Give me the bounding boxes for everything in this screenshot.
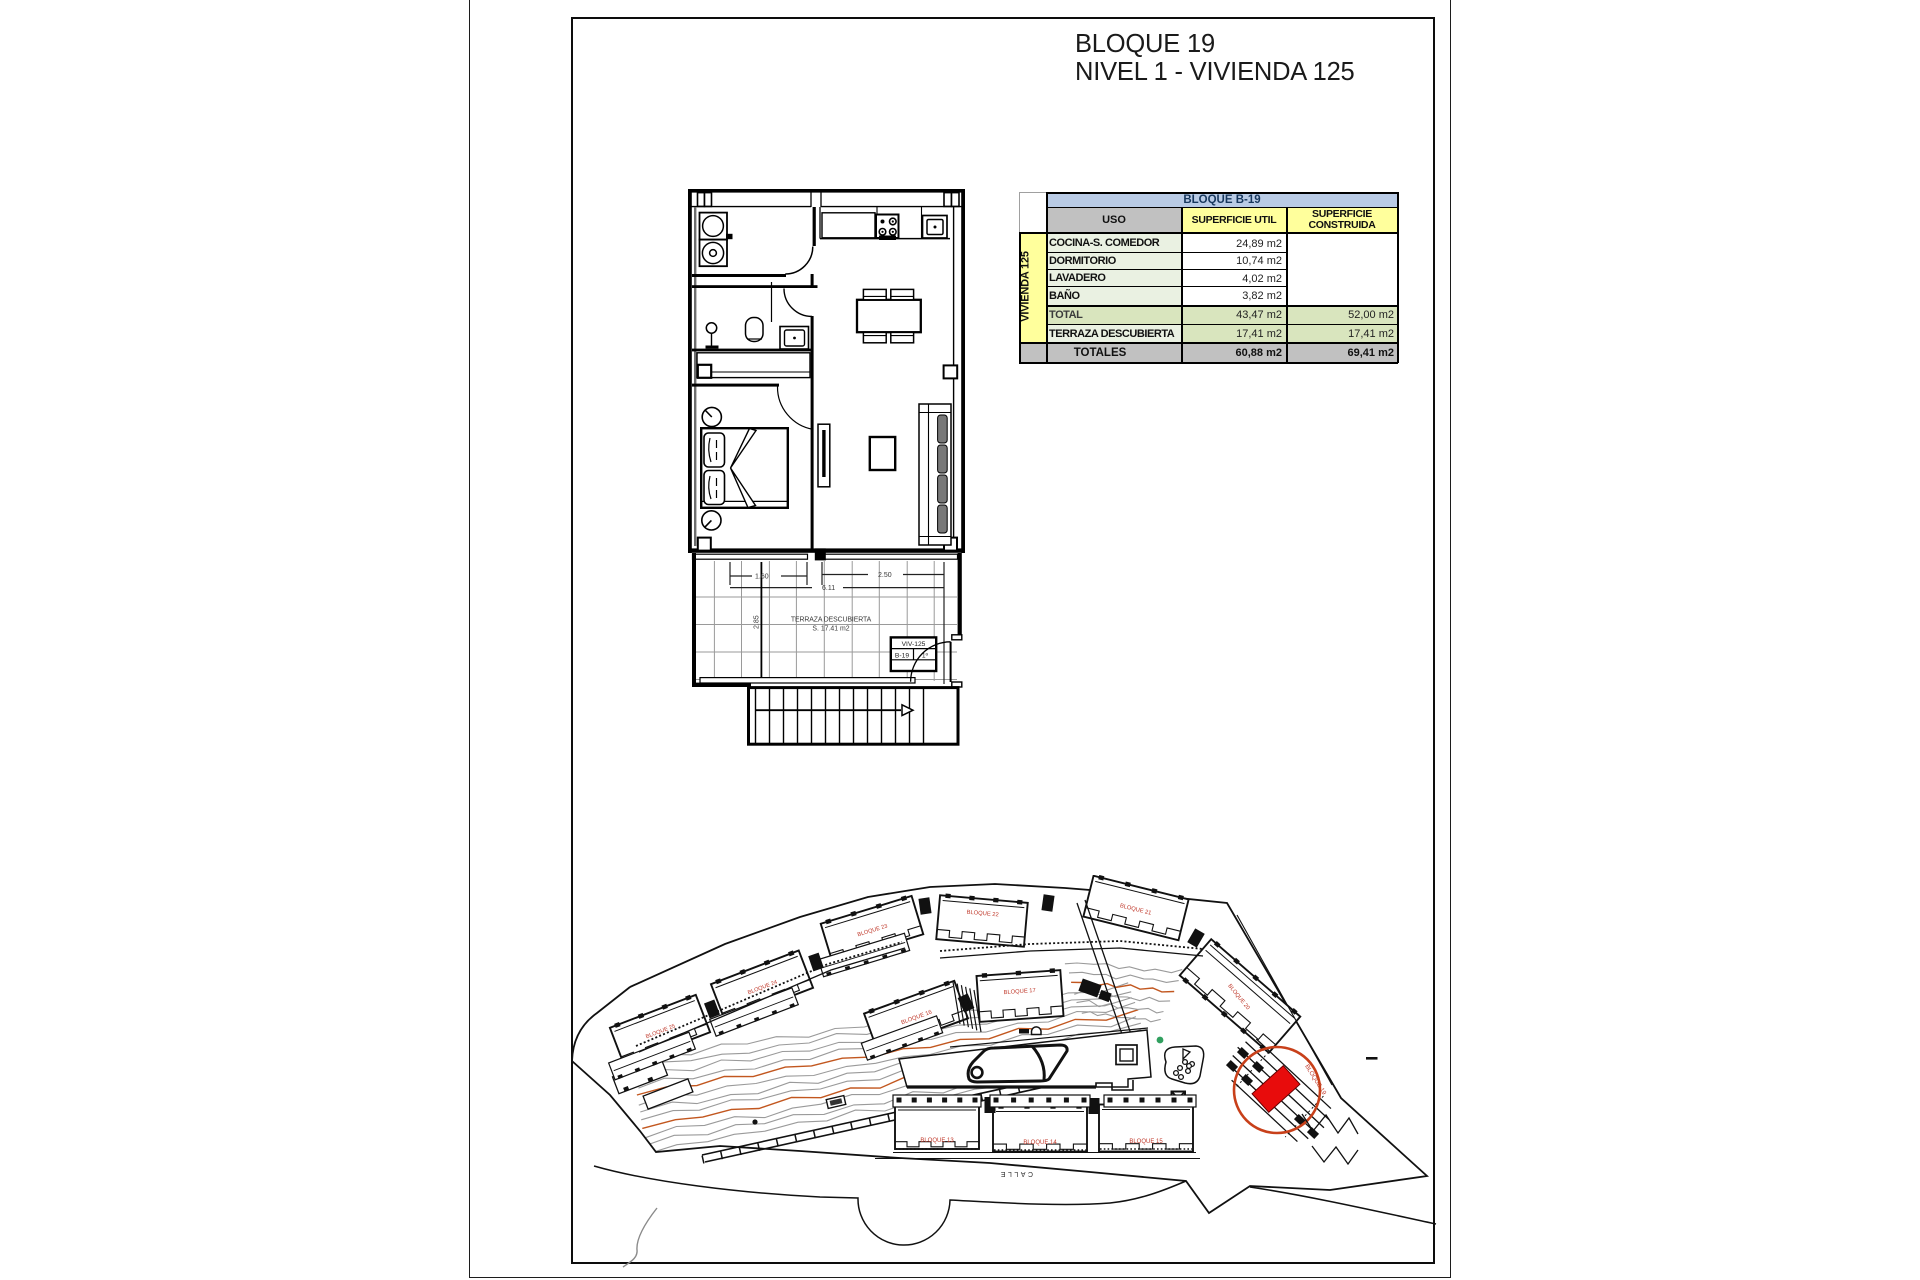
svg-text:2.50: 2.50 (878, 572, 892, 579)
svg-text:CALLE: CALLE (998, 1170, 1033, 1177)
svg-text:1.60: 1.60 (755, 573, 769, 580)
svg-text:BLOQUE 13: BLOQUE 13 (920, 1138, 954, 1144)
svg-text:VIV-125: VIV-125 (902, 641, 926, 648)
svg-text:TERRAZA DESCUBIERTA: TERRAZA DESCUBIERTA (791, 617, 872, 624)
svg-text:BLOQUE 15: BLOQUE 15 (1129, 1139, 1163, 1145)
svg-text:S. 17.41 m2: S. 17.41 m2 (812, 625, 849, 632)
svg-text:2.85: 2.85 (754, 615, 761, 629)
svg-text:6.11: 6.11 (822, 585, 835, 592)
svg-text:B-19: B-19 (895, 652, 909, 659)
svg-text:BLOQUE 14: BLOQUE 14 (1023, 1140, 1057, 1146)
